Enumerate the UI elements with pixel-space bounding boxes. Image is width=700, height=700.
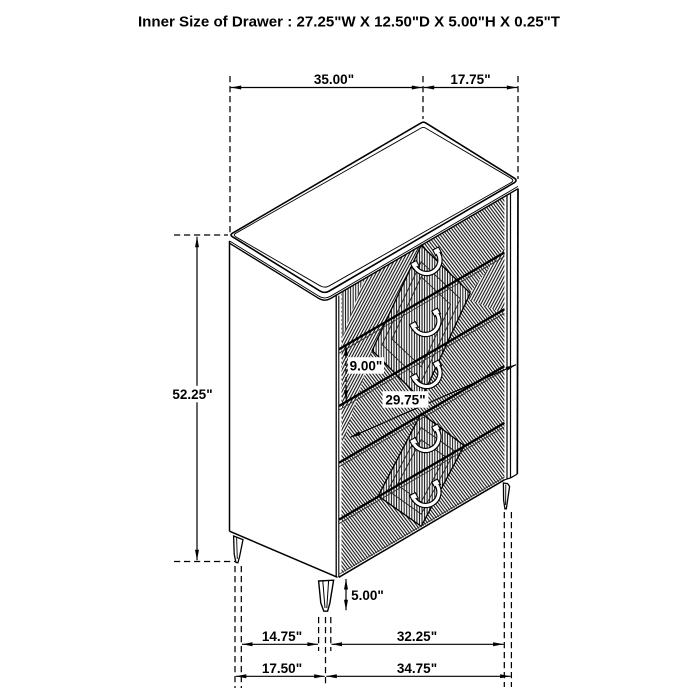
svg-text:34.75": 34.75" <box>397 661 437 676</box>
svg-text:Inner Size of Drawer : 27.25"W: Inner Size of Drawer : 27.25"W X 12.50"D… <box>138 13 561 30</box>
svg-text:29.75": 29.75" <box>385 392 425 407</box>
svg-text:9.00": 9.00" <box>350 358 383 373</box>
svg-text:32.25": 32.25" <box>397 629 437 644</box>
svg-text:17.50": 17.50" <box>262 661 302 676</box>
svg-text:17.75": 17.75" <box>450 72 490 87</box>
svg-text:5.00": 5.00" <box>351 588 384 603</box>
svg-text:35.00": 35.00" <box>314 72 354 87</box>
svg-text:52.25": 52.25" <box>172 387 212 402</box>
svg-text:14.75": 14.75" <box>262 629 302 644</box>
